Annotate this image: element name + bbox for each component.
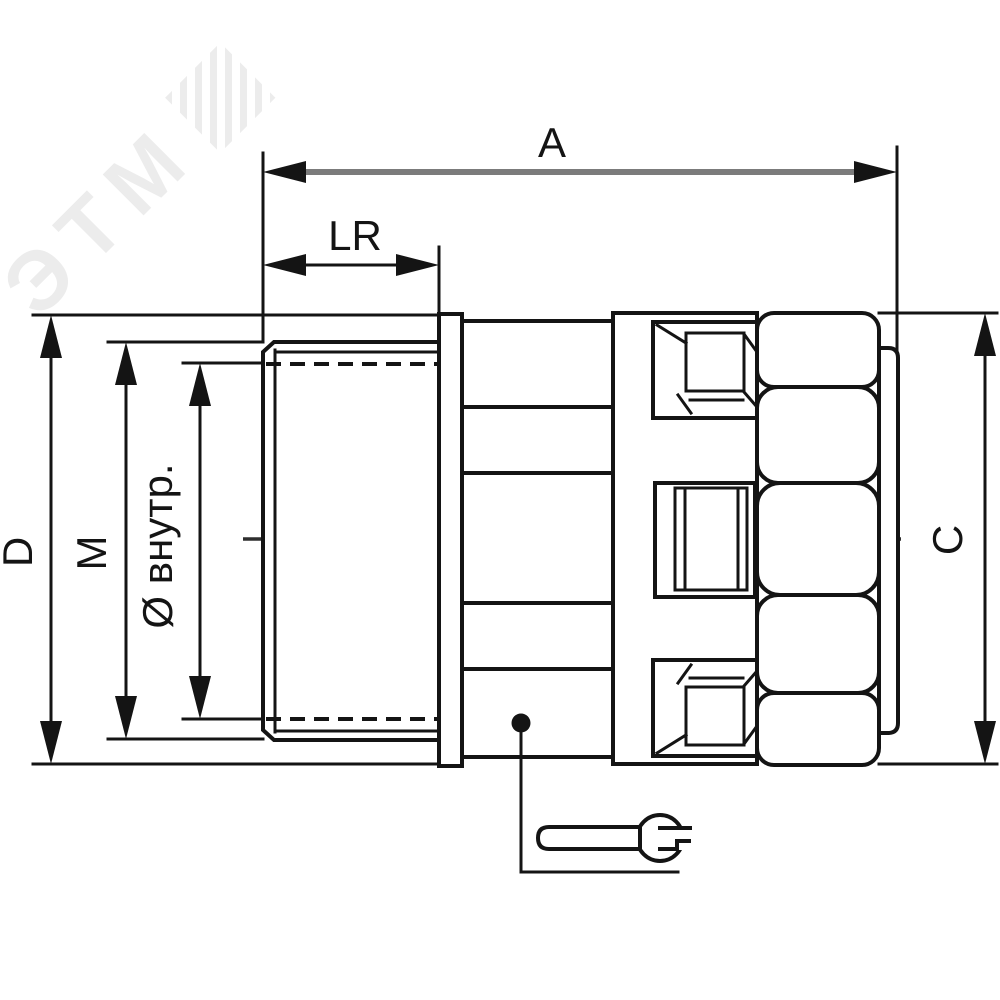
technical-drawing: A LR D M [0,0,1000,1000]
label-c: C [924,525,971,555]
hex-nut [757,313,879,765]
label-m: M [68,536,115,571]
flange-collar [439,314,462,766]
body-midsection [462,321,613,757]
label-a: A [538,119,566,166]
open-end-wrench-icon [538,815,692,861]
thread-section [263,342,439,740]
label-inner-diameter: Ø внутр. [134,463,181,628]
label-d: D [0,537,41,567]
dimension-lr: LR [263,212,439,314]
clamp-band [613,313,757,764]
dimension-inner-diameter: Ø внутр. [134,363,263,719]
label-lr: LR [328,212,382,259]
fitting-body [263,313,898,766]
end-washer [879,348,898,733]
square-window-middle [655,483,755,597]
square-window-bottom [653,660,757,756]
drawing-canvas: ЭТМ [0,0,1000,1000]
square-window-top [653,322,757,418]
